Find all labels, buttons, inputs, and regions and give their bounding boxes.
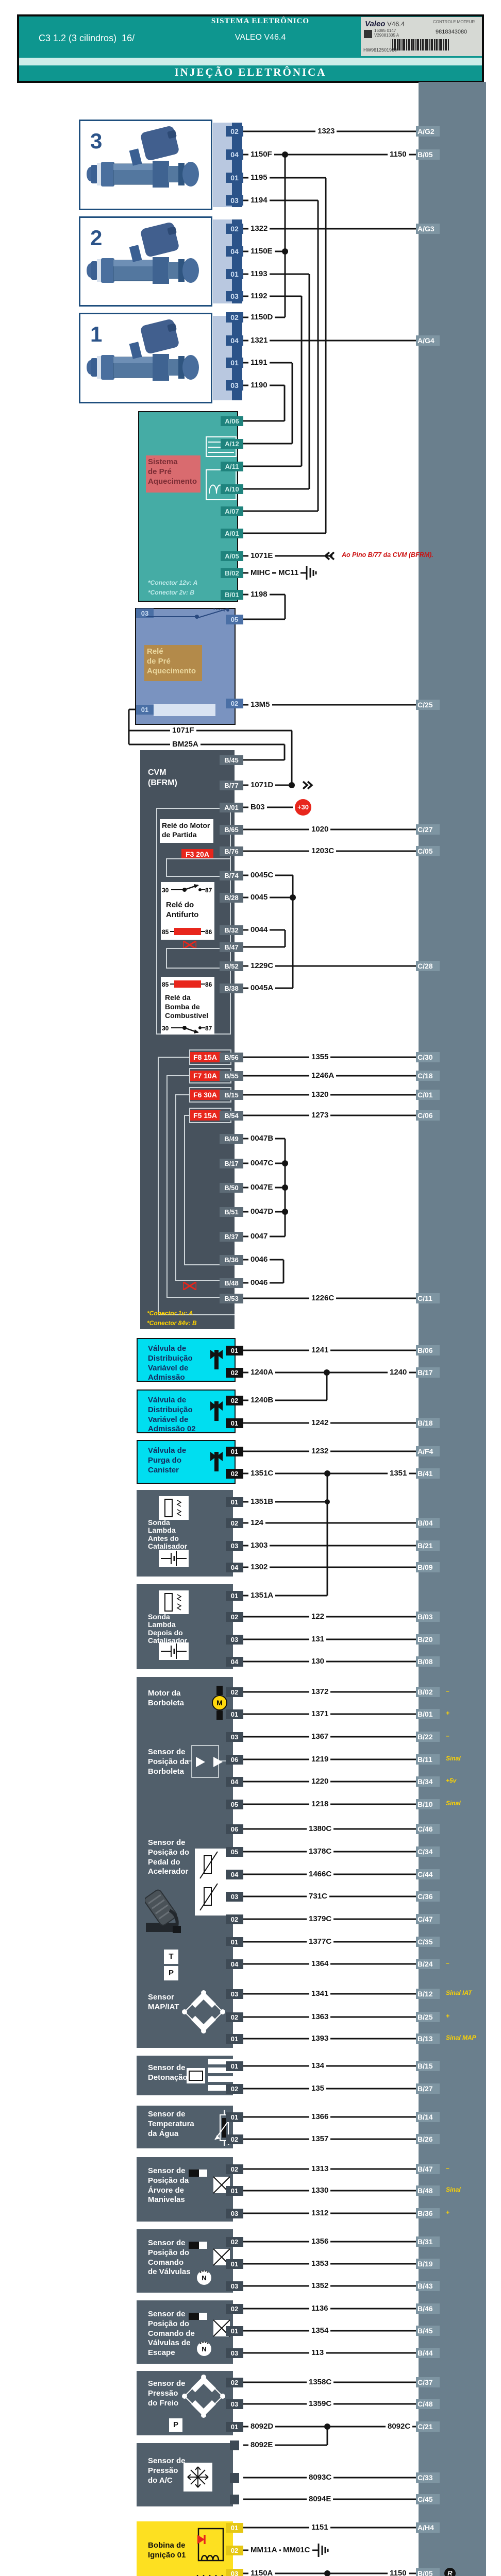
svg-text:85: 85 — [162, 981, 169, 988]
svg-text:86: 86 — [205, 928, 212, 936]
svg-text:N: N — [202, 2345, 206, 2353]
svg-text:M: M — [216, 1699, 223, 1707]
svg-text:30: 30 — [162, 887, 169, 894]
svg-text:87: 87 — [205, 1025, 212, 1032]
svg-text:87: 87 — [205, 887, 212, 894]
svg-text:N: N — [202, 2274, 206, 2282]
svg-text:85: 85 — [162, 928, 169, 936]
svg-text:+30: +30 — [297, 803, 309, 811]
svg-text:86: 86 — [205, 981, 212, 988]
svg-text:30: 30 — [162, 1025, 169, 1032]
